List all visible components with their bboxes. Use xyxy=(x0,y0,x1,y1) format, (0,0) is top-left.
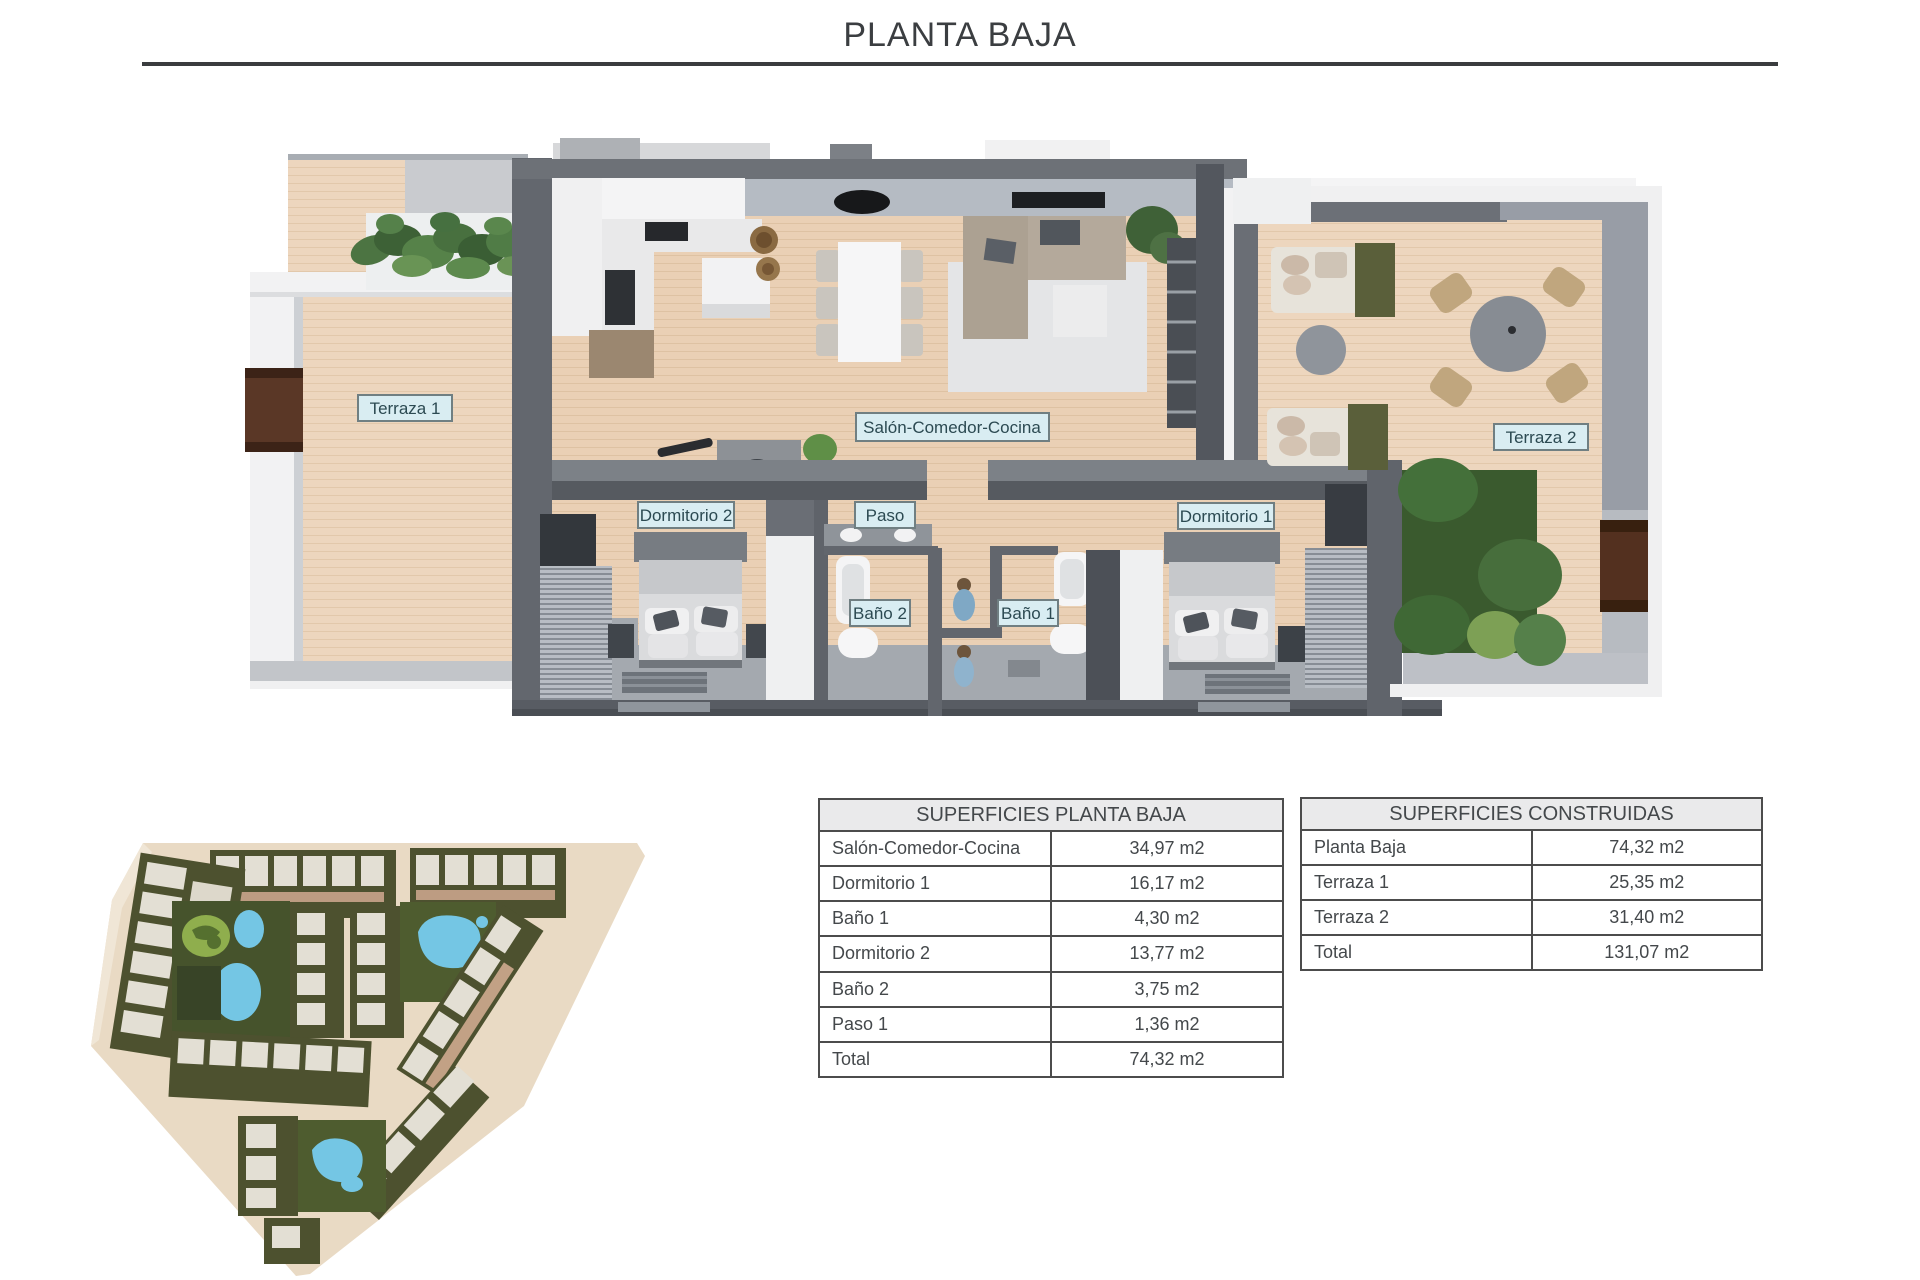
svg-text:Dormitorio 1: Dormitorio 1 xyxy=(1180,507,1273,526)
svg-text:Paso: Paso xyxy=(866,506,905,525)
svg-text:Terraza 2: Terraza 2 xyxy=(1506,428,1577,447)
svg-text:Dormitorio 2: Dormitorio 2 xyxy=(640,506,733,525)
svg-text:Salón-Comedor-Cocina: Salón-Comedor-Cocina xyxy=(863,418,1041,437)
svg-text:Terraza 1: Terraza 1 xyxy=(370,399,441,418)
svg-text:Baño 1: Baño 1 xyxy=(1001,604,1055,623)
svg-text:Baño 2: Baño 2 xyxy=(853,604,907,623)
